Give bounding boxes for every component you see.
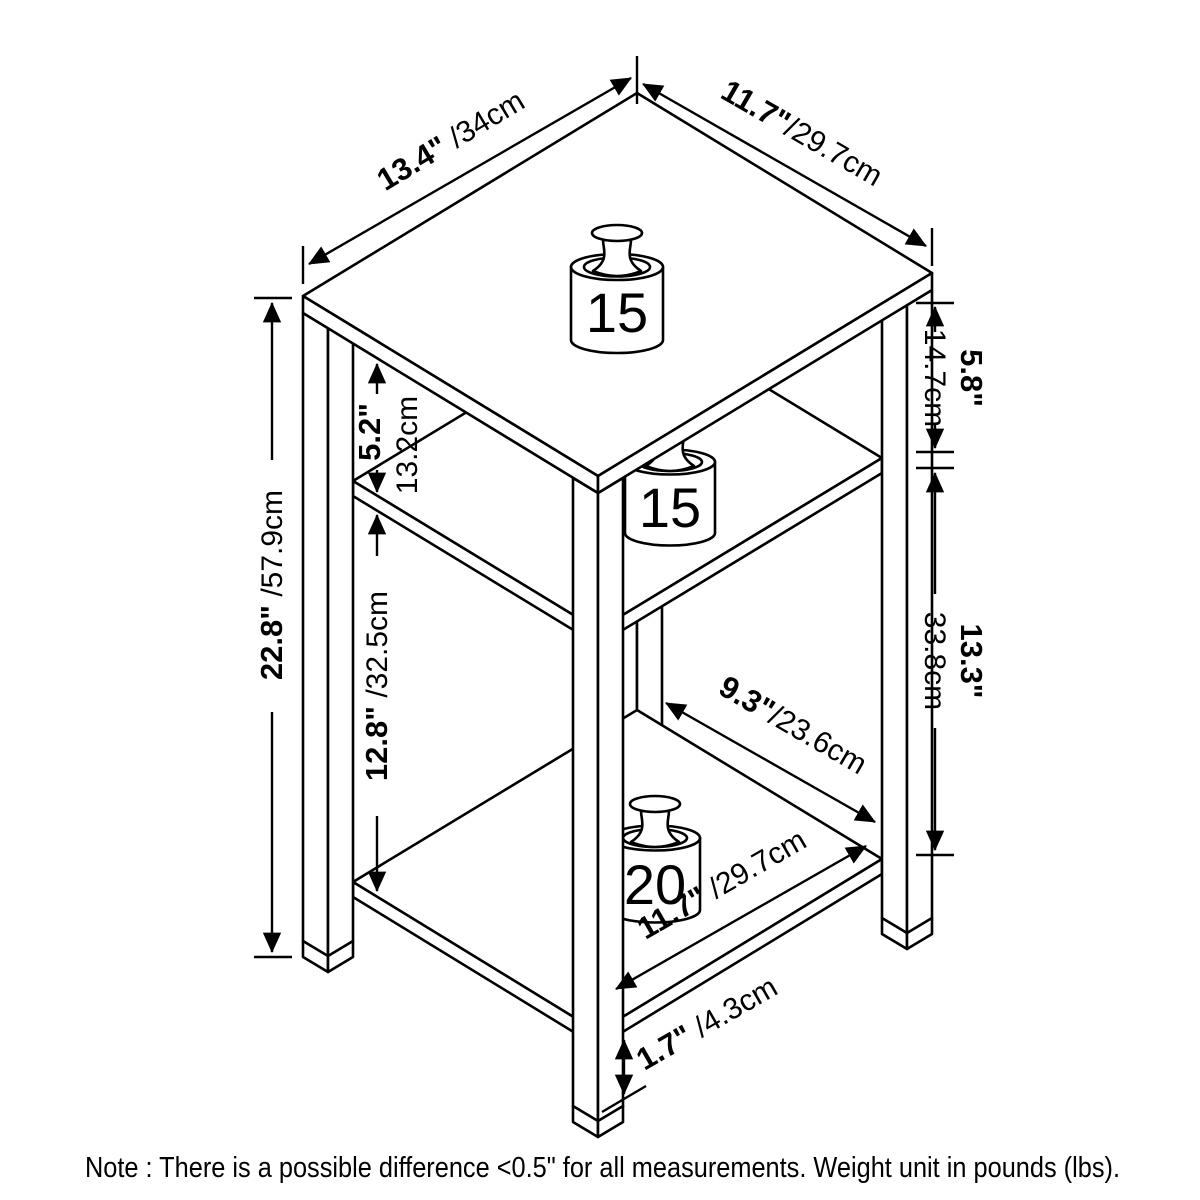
dim-label-inch: 5.2"	[352, 403, 387, 461]
dim-left-height: 22.8" /57.9cm	[254, 298, 292, 957]
front-center-leg-right-face	[598, 478, 623, 1137]
dim-label-cm: 33.8cm	[918, 612, 951, 710]
dim-inner-lower: 12.8" /32.5cm	[359, 515, 394, 891]
dim-label-inch: 13.3"	[954, 623, 989, 698]
dim-label-cm: 14.7cm	[918, 329, 951, 427]
front-left-leg	[303, 313, 353, 972]
dim-label: 22.8" /57.9cm	[254, 490, 289, 680]
front-center-leg	[573, 478, 623, 1137]
measurement-note: Note : There is a possible difference <0…	[85, 1152, 1120, 1184]
top-weight-value: 15	[586, 281, 648, 344]
middle-weight-value: 15	[639, 476, 701, 539]
diagram-canvas: 15 20	[0, 0, 1200, 1200]
dim-label-cm: 13.2cm	[391, 396, 424, 494]
weight-knob-cap	[630, 796, 680, 812]
dim-label-inch: 5.8"	[954, 349, 989, 407]
dim-label: 9.3"/23.6cm	[713, 669, 873, 782]
right-leg-left-face	[882, 290, 907, 949]
dim-label: 12.8" /32.5cm	[359, 591, 394, 781]
end-table-drawing: 15 20	[303, 93, 932, 1137]
weight-knob-cap	[592, 225, 642, 241]
dimension-diagram: 15 20	[0, 0, 1200, 1200]
front-left-leg-left-face	[303, 313, 328, 972]
front-left-leg-right-face	[328, 313, 353, 972]
front-center-leg-left-face	[573, 478, 598, 1137]
